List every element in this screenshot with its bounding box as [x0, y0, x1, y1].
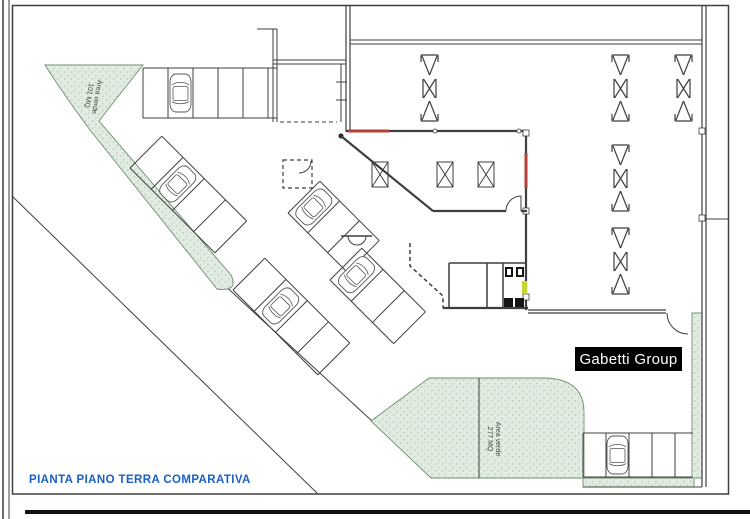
- area-label-line: Area verde: [494, 422, 501, 456]
- truss-column-icon: [675, 55, 692, 121]
- parking-row-diagonal-d: [330, 248, 425, 343]
- interior-column-icons: [372, 162, 494, 187]
- column-icon: [372, 162, 388, 187]
- toilet-icon: [515, 298, 524, 307]
- car-icon: [607, 436, 628, 474]
- highlighted-door: [522, 281, 527, 294]
- gabetti-group-label: Gabetti Group: [579, 351, 677, 368]
- truss-column-icon: [612, 55, 629, 121]
- column-icon: [437, 162, 453, 187]
- green-area-south: [371, 378, 584, 478]
- floor-plan-page: Area verde 101 MQ Area verde 277 MQ Gabe…: [0, 0, 750, 519]
- parking-row-diagonal-c: [233, 258, 350, 375]
- plan-title: PIANTA PIANO TERRA COMPARATIVA: [29, 474, 349, 486]
- bathroom-block: [410, 243, 528, 308]
- car-icon: [293, 186, 335, 228]
- toilet-icon: [504, 298, 513, 307]
- green-strip-east: [583, 313, 702, 487]
- parking-row-bottom-right: [583, 433, 693, 477]
- green-area-south-label: Area verde 277 MQ: [485, 407, 501, 471]
- car-icon: [336, 254, 378, 296]
- car-icon: [260, 285, 302, 327]
- truss-column-icons: [421, 55, 692, 294]
- office-unit: [283, 129, 529, 310]
- car-icon: [170, 74, 191, 112]
- gabetti-group-badge: Gabetti Group: [575, 347, 682, 371]
- truss-column-icon: [612, 228, 629, 294]
- truss-column-icon: [421, 55, 438, 121]
- area-label-line: 277 MQ: [486, 427, 493, 452]
- entrance-canopy: [283, 160, 312, 188]
- truss-column-icon: [612, 145, 629, 211]
- stair-block: [257, 29, 347, 122]
- floor-plan-drawing: [0, 0, 750, 519]
- column-icon: [478, 162, 494, 187]
- side-door: [341, 236, 372, 245]
- parking-row-top: [143, 68, 277, 118]
